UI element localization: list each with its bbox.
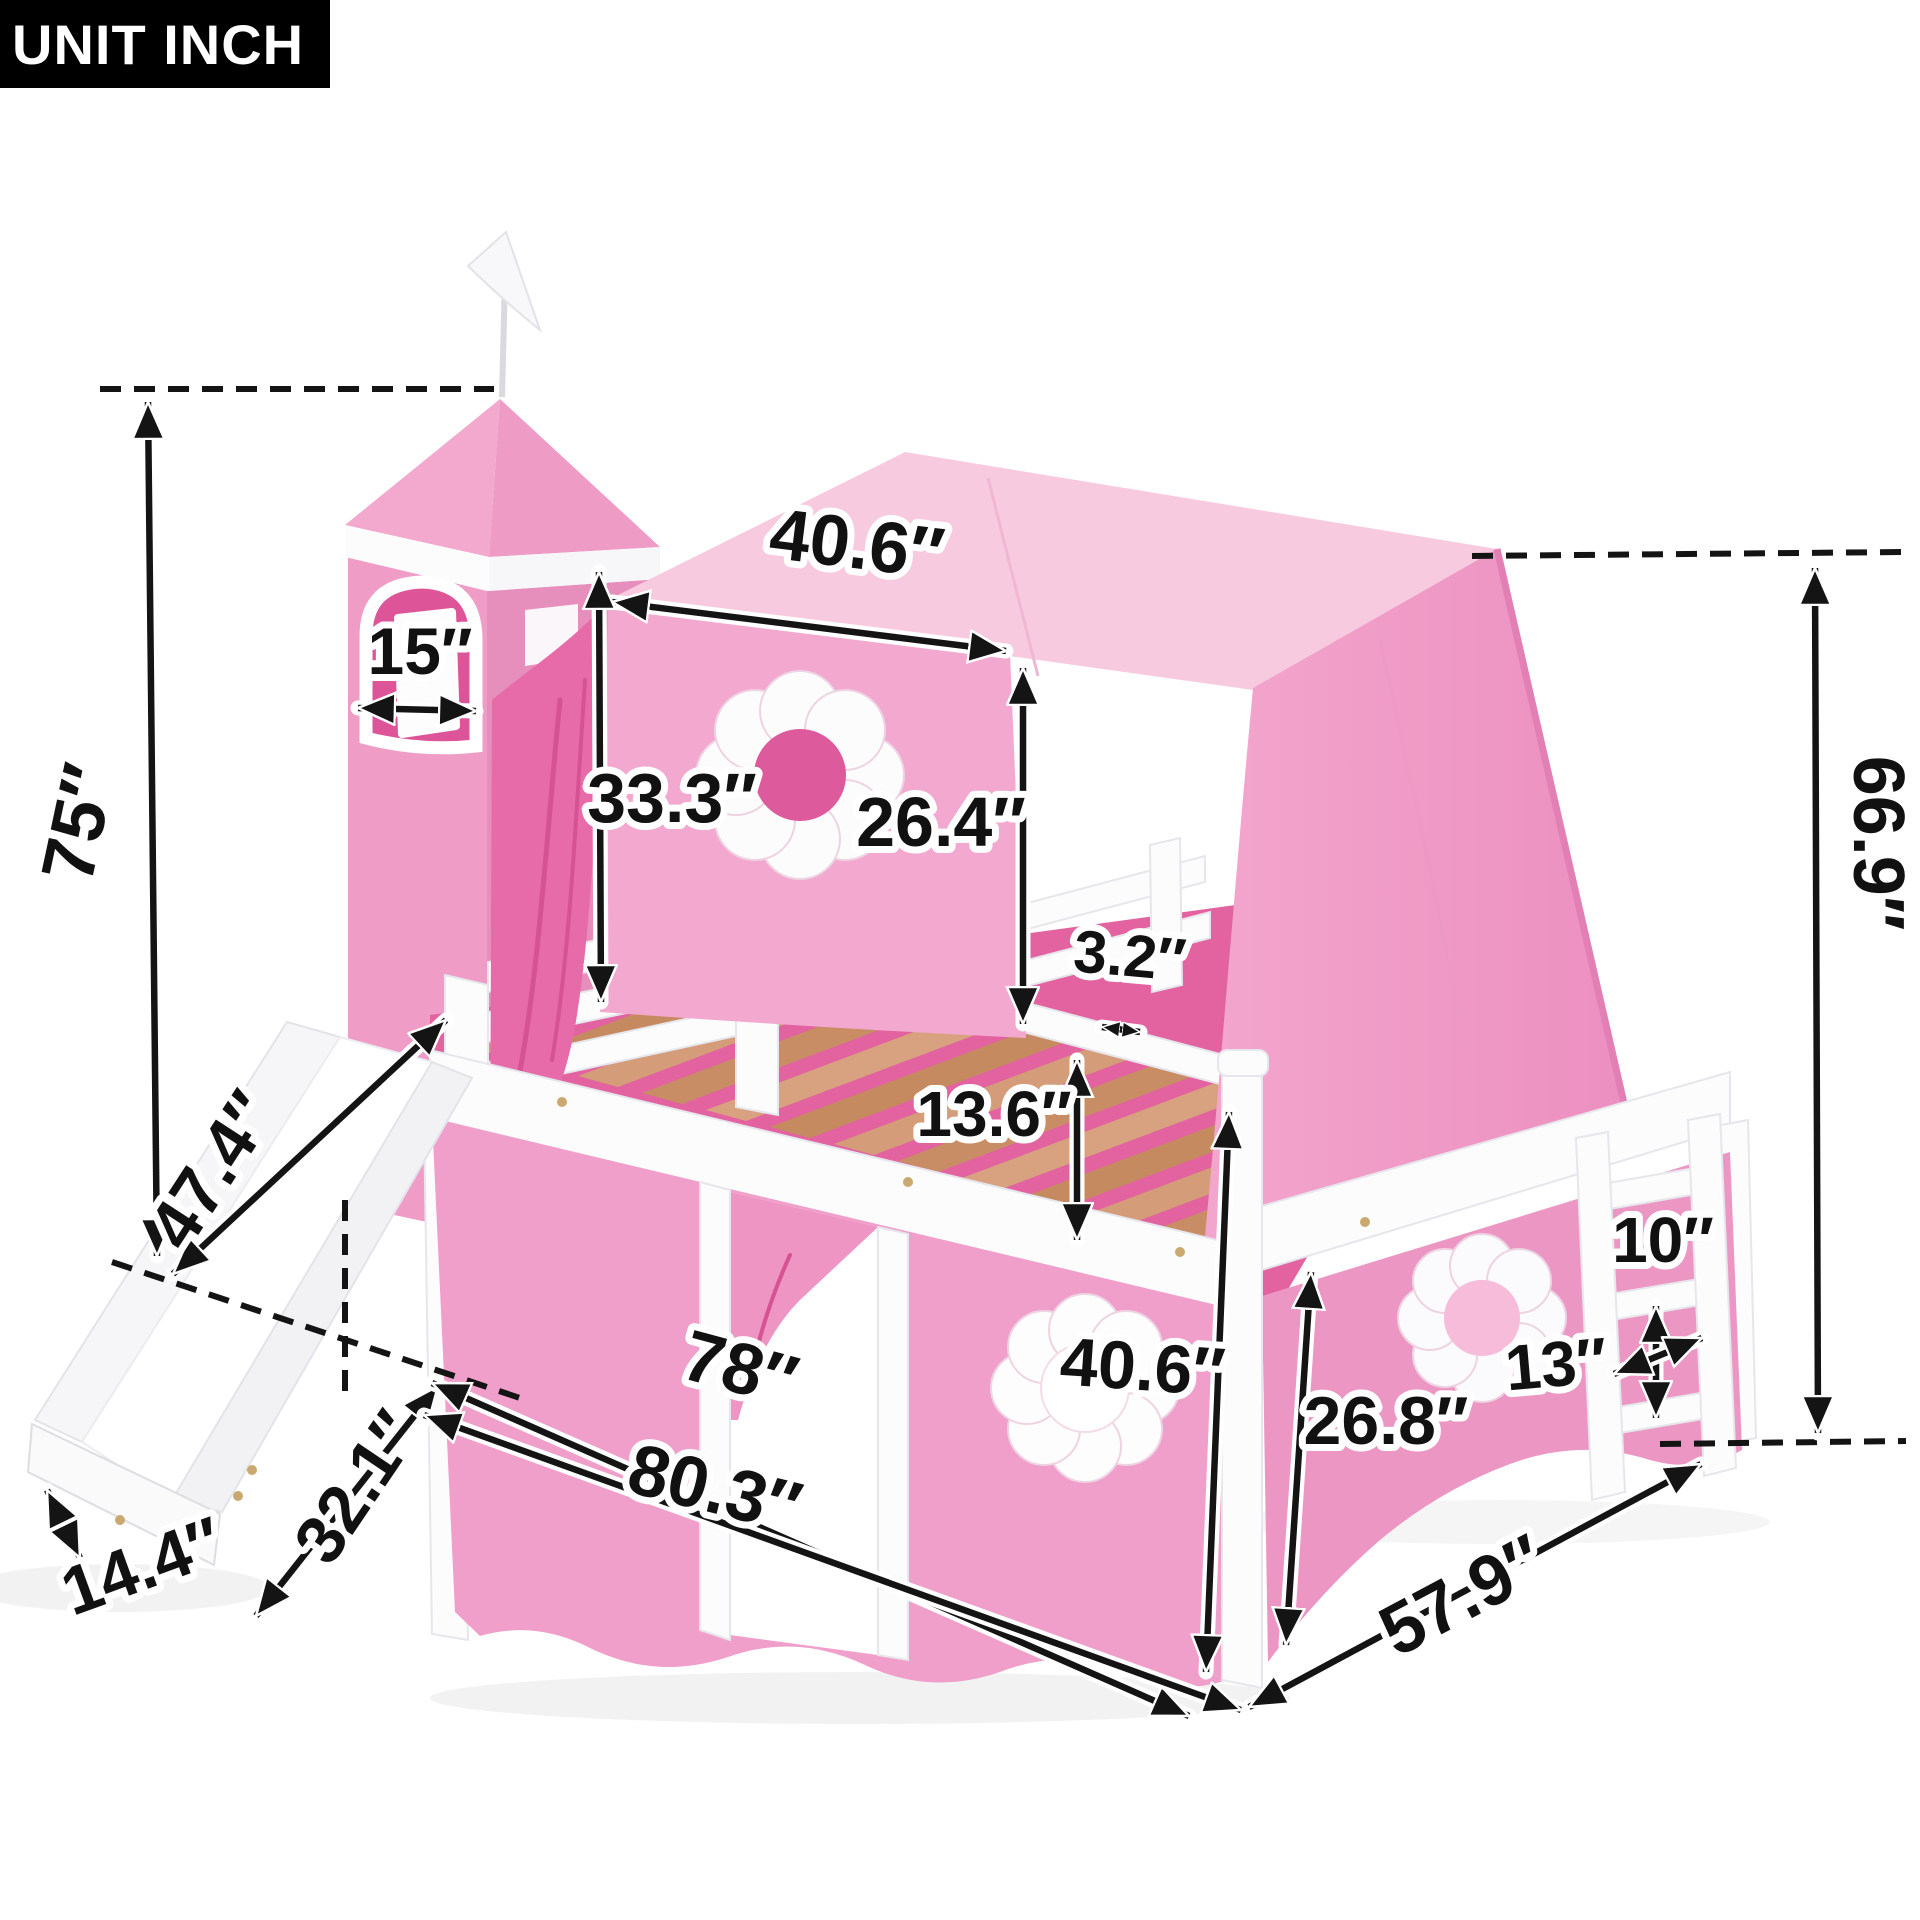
door-trim-left <box>700 1182 730 1640</box>
dim-label-75: 75″ <box>25 756 131 888</box>
dim-label-26-4: 26.4″ <box>856 783 1026 861</box>
dim-label-40-6-bottom: 40.6″ <box>1058 1323 1228 1410</box>
screw <box>557 1097 567 1107</box>
tower-roof-right-face <box>489 399 660 557</box>
dim-label-3-2: 3.2″ <box>1071 917 1189 994</box>
dim-label-32-1: 32.1″ <box>279 1398 434 1577</box>
bed-dimension-diagram: 75″ 15″ 40.6″ 33.3″ 26.4″ 3.2″ <box>0 0 1920 1920</box>
screw <box>903 1177 913 1187</box>
screw <box>233 1491 243 1501</box>
diagram-page: 75″ 15″ 40.6″ 33.3″ 26.4″ 3.2″ <box>0 0 1920 1920</box>
screw <box>247 1465 257 1475</box>
front-right-leg-cap <box>1218 1050 1268 1076</box>
unit-badge-label: UNIT INCH <box>12 12 304 77</box>
dim-label-26-8: 26.8″ <box>1304 1383 1469 1459</box>
window-hole <box>754 729 846 821</box>
dim-slide-run: 32.1″ <box>256 1386 438 1616</box>
dim-overall-height: 66.9″ <box>1815 568 1918 1433</box>
dim-label-66-9: 66.9″ <box>1838 756 1918 931</box>
dim-label-33-3: 33.3″ <box>587 759 757 837</box>
dim-label-10: 10″ <box>1612 1204 1714 1276</box>
dim-label-15: 15″ <box>367 614 472 688</box>
dashed-line-floor-right <box>1660 1441 1906 1444</box>
screw <box>1175 1247 1185 1257</box>
screw <box>1360 1217 1370 1227</box>
dim-label-13: 13″ <box>1502 1324 1610 1405</box>
screw <box>115 1515 125 1525</box>
dashed-line-tent-top-right <box>1472 552 1906 556</box>
dim-tower-height: 75″ <box>25 402 157 1256</box>
unit-badge: UNIT INCH <box>0 0 330 88</box>
dim-label-13-6: 13.6″ <box>916 1078 1071 1150</box>
